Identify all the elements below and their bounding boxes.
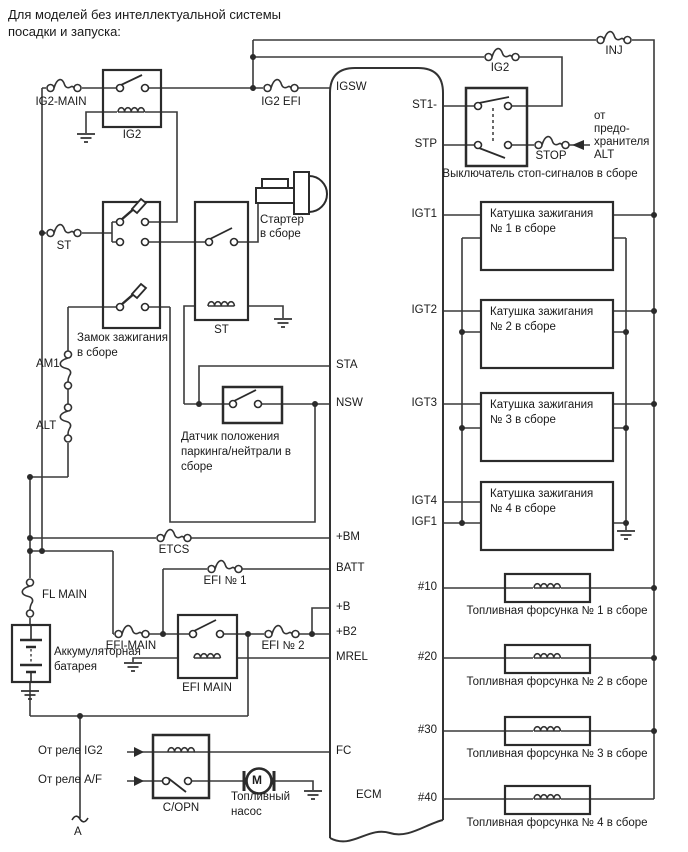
arrow-from-alt-fuse xyxy=(572,140,584,150)
fuse-efi-no2-label: EFI № 2 xyxy=(248,640,318,653)
injector2-box xyxy=(505,645,590,673)
ecm-pin-nsw: NSW xyxy=(336,397,363,410)
injector3-label: Топливная форсунка № 3 в сборе xyxy=(457,748,657,761)
st-relay-box xyxy=(195,202,248,320)
alt-note-line4: ALT xyxy=(594,149,614,162)
st-relay-label: ST xyxy=(195,324,248,337)
fuse-inj-label: INJ xyxy=(598,45,630,58)
alt-note-line3: хранителя xyxy=(594,136,649,149)
ignition-switch-label-line1: Замок зажигания xyxy=(77,332,168,345)
fuse-ig2-top-label: IG2 xyxy=(480,62,520,75)
battery-icon xyxy=(20,625,42,682)
starter-icon xyxy=(256,172,327,214)
fuse-efi-no1-icon xyxy=(208,561,242,573)
coil-ground-icon xyxy=(617,531,635,539)
park-neutral-label-line2: паркинга/нейтрали в xyxy=(181,446,291,459)
ig2-coil-icon xyxy=(118,108,144,112)
starter-label-line1: Стартер xyxy=(260,214,304,227)
copn-coil-icon xyxy=(168,748,194,752)
starter-label-line2: в сборе xyxy=(260,228,301,241)
battery-label-line2: батарея xyxy=(54,661,97,674)
alt-note-line2: предо- xyxy=(594,123,630,136)
injector2-coil-icon xyxy=(534,654,560,658)
ignition-switch-label-line2: в сборе xyxy=(77,347,118,360)
ecm-pin-40: #40 xyxy=(388,792,437,805)
page-title-line1: Для моделей без интеллектуальной системы xyxy=(8,6,281,23)
injector4-label: Топливная форсунка № 4 в сборе xyxy=(457,817,657,830)
fuse-efi-no2-icon xyxy=(265,626,299,638)
ecm-pin-10: #10 xyxy=(388,581,437,594)
injector2-label: Топливная форсунка № 2 в сборе xyxy=(457,676,657,689)
ig2-relay-switch xyxy=(117,75,149,92)
ig2-relay-label: IG2 xyxy=(103,129,161,142)
coil1-label-line1: Катушка зажигания xyxy=(490,208,593,221)
stop-switch-contacts xyxy=(475,97,512,158)
coil4-label-line1: Катушка зажигания xyxy=(490,488,593,501)
ecm-pin-b2: +B2 xyxy=(336,626,357,639)
park-neutral-label-line3: сборе xyxy=(181,461,213,474)
fuse-st-icon xyxy=(47,225,81,237)
efi-main-ground-icon xyxy=(124,663,142,671)
link-am1-icon xyxy=(60,351,71,389)
fuse-etcs-label: ETCS xyxy=(144,544,204,557)
fuse-ig2-efi-icon xyxy=(264,80,298,92)
battery-label-line1: Аккумуляторная xyxy=(54,646,141,659)
fuse-stop-icon xyxy=(535,137,569,149)
park-neutral-switch xyxy=(230,390,262,408)
link-fl-main-label: FL MAIN xyxy=(42,589,87,602)
fuse-ig2-efi-label: IG2 EFI xyxy=(246,96,316,109)
ecm-pin-st1: ST1- xyxy=(388,99,437,112)
coil2-label-line2: № 2 в сборе xyxy=(490,321,556,334)
coil1-label-line2: № 1 в сборе xyxy=(490,223,556,236)
st-relay-switch xyxy=(206,228,238,246)
connector-a-label: A xyxy=(74,826,82,839)
ecm-label: ECM xyxy=(356,789,382,802)
ecm-pin-sta: STA xyxy=(336,359,358,372)
from-af-relay-label: От реле A/F xyxy=(38,774,102,787)
from-ig2-relay-label: От реле IG2 xyxy=(38,745,103,758)
ecm-pin-20: #20 xyxy=(388,651,437,664)
ecm-pin-stp: STP xyxy=(388,138,437,151)
fuse-inj-icon xyxy=(597,32,631,44)
fuse-ig2-icon xyxy=(485,49,519,61)
injector4-coil-icon xyxy=(534,795,560,799)
st-coil-icon xyxy=(208,302,234,306)
ecm-pin-igt4: IGT4 xyxy=(388,495,437,508)
fuse-st-label: ST xyxy=(44,240,84,253)
wiring-diagram-page: Для моделей без интеллектуальной системы… xyxy=(0,0,688,852)
ecm-pin-igsw: IGSW xyxy=(336,81,367,94)
injector4-box xyxy=(505,786,590,814)
fuse-etcs-icon xyxy=(157,530,191,542)
alt-note-line1: от xyxy=(594,110,605,123)
link-fl-main-icon xyxy=(22,579,33,617)
ecm-pin-igt3: IGT3 xyxy=(388,397,437,410)
component-boxes xyxy=(12,70,613,814)
coil4-label-line2: № 4 в сборе xyxy=(490,503,556,516)
motor-m-label: M xyxy=(252,774,262,787)
ecm-pin-fc: FC xyxy=(336,745,351,758)
ecm-pin-mrel: MREL xyxy=(336,651,368,664)
ecm-pin-b: +B xyxy=(336,601,350,614)
efi-main-relay-label: EFI MAIN xyxy=(172,682,242,695)
ignition-switch-box xyxy=(103,202,160,328)
ig2-relay-box xyxy=(103,70,161,127)
arrow-from-af-relay xyxy=(134,776,144,786)
ecm-pin-batt: BATT xyxy=(336,562,365,575)
fuse-ig2-main-label: IG2-MAIN xyxy=(18,96,104,109)
wiring-svg xyxy=(0,0,688,852)
coil3-label-line1: Катушка зажигания xyxy=(490,399,593,412)
ig2-ground-icon xyxy=(77,134,95,142)
copn-relay-label: C/OPN xyxy=(146,802,216,815)
injector3-coil-icon xyxy=(534,727,560,731)
coil3-label-line2: № 3 в сборе xyxy=(490,414,556,427)
ecm-pin-30: #30 xyxy=(388,724,437,737)
coil2-label-line1: Катушка зажигания xyxy=(490,306,593,319)
efi-main-relay-switch xyxy=(190,620,224,638)
injector1-label: Топливная форсунка № 1 в сборе xyxy=(457,605,657,618)
fuel-pump-label-line1: Топливный xyxy=(231,791,290,804)
fuse-stop-label: STOP xyxy=(531,150,571,163)
fuel-pump-label-line2: насос xyxy=(231,806,262,819)
link-alt-label: ALT xyxy=(36,420,56,433)
link-alt-icon xyxy=(60,404,71,442)
ecm-pin-igf1: IGF1 xyxy=(388,516,437,529)
injector1-coil-icon xyxy=(534,584,560,588)
st-ground-icon xyxy=(274,319,292,327)
link-am1-label: AM1 xyxy=(36,358,60,371)
page-title-line2: посадки и запуска: xyxy=(8,23,121,40)
fuse-ig2-main-icon xyxy=(47,80,81,92)
efi-main-coil-icon xyxy=(194,654,220,658)
copn-relay-switch xyxy=(163,778,192,793)
fuse-efi-no1-label: EFI № 1 xyxy=(190,575,260,588)
pump-ground-icon xyxy=(304,791,322,799)
fuse-efi-main-icon xyxy=(115,626,149,638)
ecm-pin-bm: +BM xyxy=(336,531,360,544)
ignition-switch-contacts xyxy=(117,199,149,311)
ecm-pin-igt1: IGT1 xyxy=(388,208,437,221)
ecm-pin-igt2: IGT2 xyxy=(388,304,437,317)
park-neutral-label-line1: Датчик положения xyxy=(181,431,279,444)
arrow-from-ig2-relay xyxy=(134,747,144,757)
stop-switch-label: Выключатель стоп-сигналов в сборе xyxy=(430,168,650,181)
